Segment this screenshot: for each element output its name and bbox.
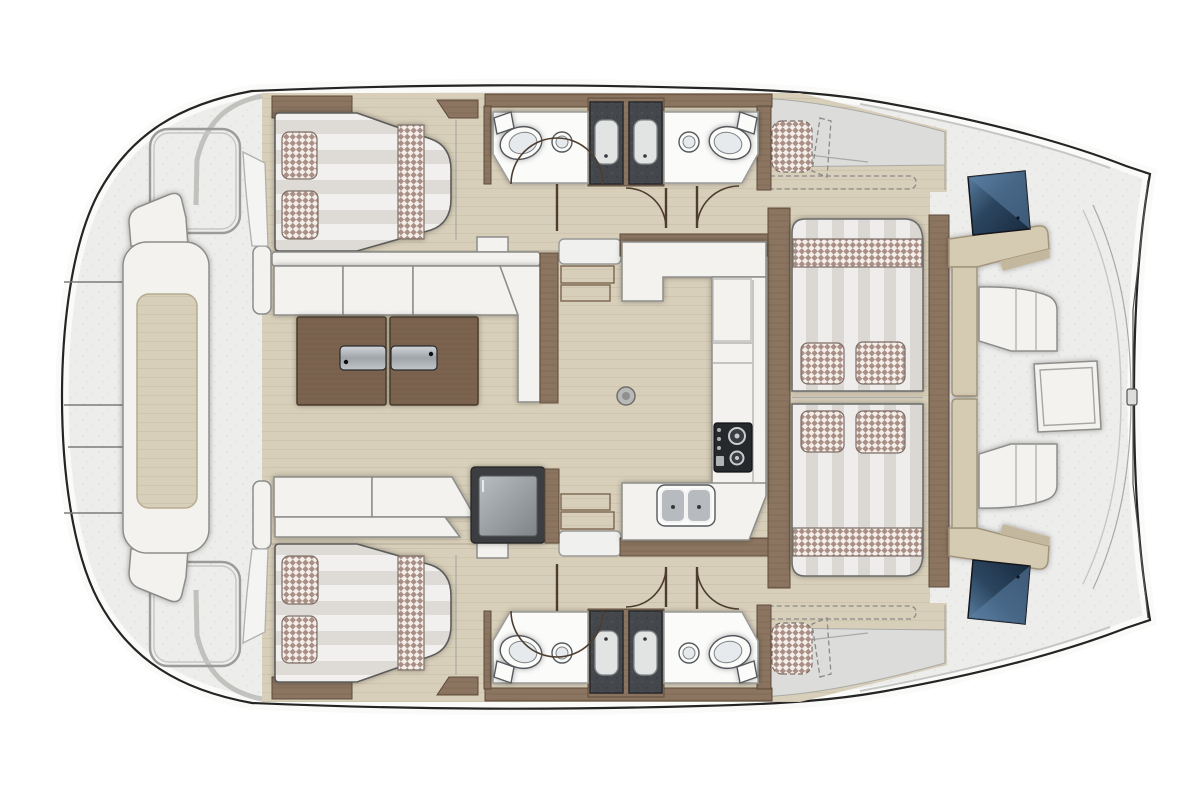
cabin-step	[477, 237, 508, 252]
pillow	[282, 191, 318, 239]
shower-drain	[604, 154, 608, 158]
head-wall	[484, 106, 491, 184]
glass-dot	[1016, 216, 1019, 219]
sofa-backrest	[272, 252, 540, 266]
blanket-band	[793, 528, 922, 556]
fridge-side-panel	[545, 469, 559, 543]
glass-hatch-port	[968, 171, 1030, 235]
bench-arm	[952, 267, 977, 396]
salon-sofa-bottom	[274, 477, 475, 537]
fridge	[471, 467, 545, 543]
stove	[714, 423, 752, 472]
shower-drain	[643, 154, 647, 158]
head-wall	[757, 106, 771, 190]
pillow	[801, 411, 844, 452]
pillow	[801, 343, 844, 384]
salon-door-post-top	[253, 246, 271, 314]
table-handle	[340, 346, 386, 370]
blanket-band	[793, 239, 922, 267]
pillow	[282, 132, 317, 179]
sink-bowl	[683, 136, 695, 148]
sofa-backrest	[275, 517, 460, 537]
sofa-seat	[343, 266, 413, 315]
lounge-mattress-top	[792, 219, 923, 391]
bow-center-hatch	[1034, 361, 1101, 432]
latch-dot	[429, 352, 433, 356]
sofa-seat	[274, 266, 343, 315]
table-handle	[391, 346, 437, 370]
aft-console	[123, 193, 209, 601]
stair-step	[561, 285, 610, 301]
deck-plan-svg	[0, 0, 1200, 800]
sofa-seat	[274, 477, 372, 517]
fridge-door	[479, 476, 537, 536]
bulkhead-panel	[929, 215, 949, 587]
pillow	[856, 342, 905, 384]
socket-center	[622, 392, 630, 400]
glass-hatch-starboard	[968, 560, 1030, 624]
galley-sink	[657, 485, 715, 526]
catamaran-floorplan	[0, 0, 1200, 800]
lounge-mattress-bottom	[792, 404, 923, 576]
stair-step	[561, 266, 614, 283]
latch-dot	[344, 360, 348, 364]
optional-cushion	[772, 121, 812, 172]
blanket-band	[398, 125, 424, 239]
bulkhead-panel	[768, 208, 790, 588]
salon-door-post-bottom	[253, 481, 271, 549]
console-inset	[137, 294, 197, 508]
bow-fitting	[1127, 389, 1137, 405]
bench-seat	[979, 287, 1057, 351]
pillow	[856, 411, 905, 453]
sofa-side-panel	[540, 253, 558, 403]
stair-landing	[559, 239, 621, 264]
